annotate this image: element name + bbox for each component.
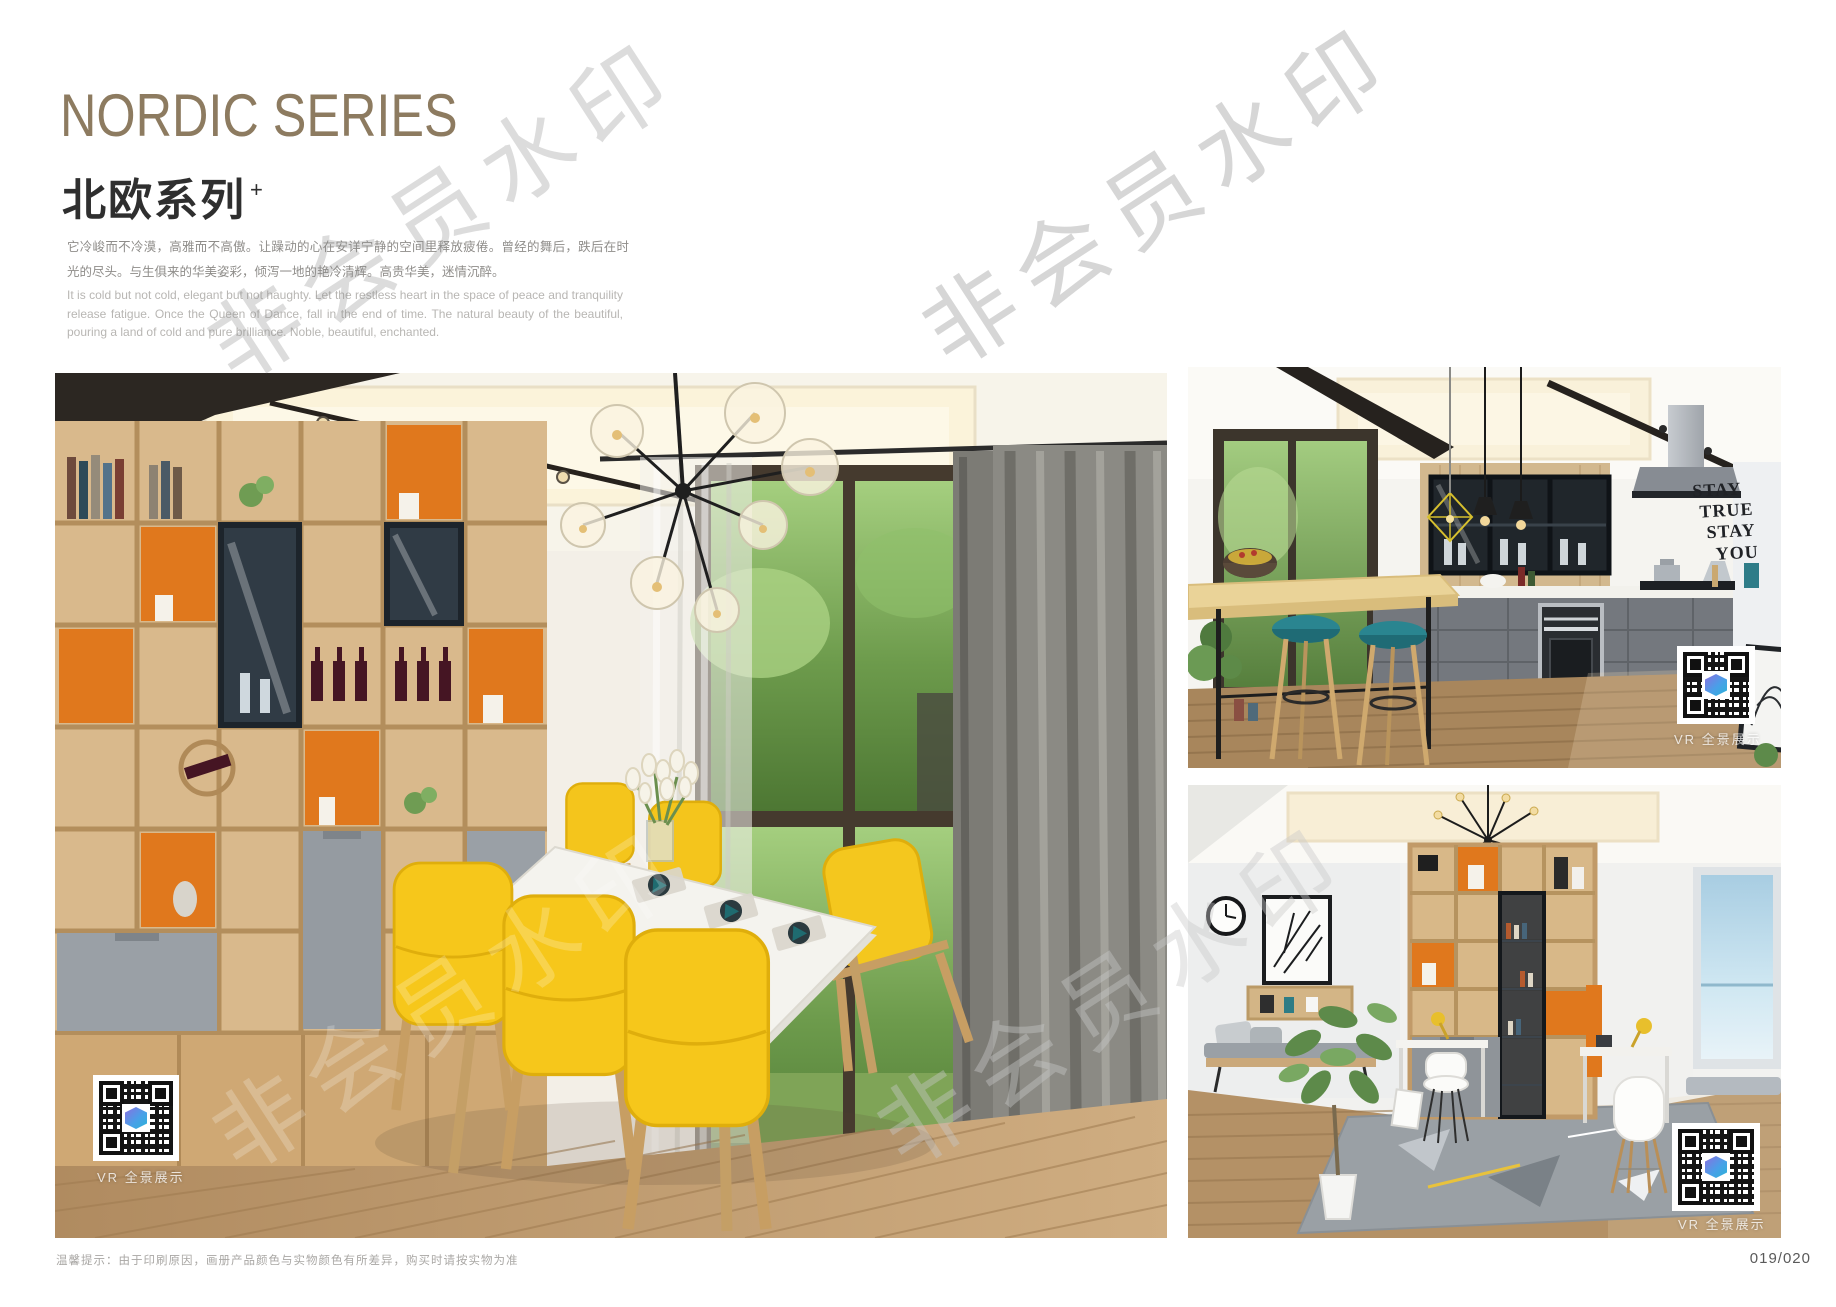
bookshelf-unit bbox=[55, 421, 547, 1166]
stay-true-wall-art: STAY TRUE STAY YOU bbox=[1692, 477, 1768, 566]
page-number: 019/020 bbox=[1750, 1250, 1811, 1267]
gray-drapes bbox=[953, 445, 1167, 1217]
wall-clock bbox=[1208, 898, 1244, 934]
vr-qr-code bbox=[93, 1075, 179, 1161]
qr-eye bbox=[1678, 1180, 1703, 1205]
dining-room-photo: VR 全景展示 bbox=[55, 373, 1167, 1238]
qr-eye bbox=[1729, 1129, 1754, 1154]
catalog-page: NORDIC SERIES 北欧系列+ 它冷峻而不冷漠，高雅而不高傲。让躁动的心… bbox=[0, 0, 1836, 1307]
series-title-superscript: + bbox=[250, 177, 265, 202]
qr-eye bbox=[1678, 1129, 1703, 1154]
intro-paragraph-en: It is cold but not cold, elegant but not… bbox=[67, 286, 623, 342]
series-title-en: NORDIC SERIES bbox=[60, 86, 458, 146]
qr-logo-cube-icon bbox=[1702, 1153, 1730, 1181]
series-title-cn: 北欧系列+ bbox=[62, 164, 265, 228]
qr-eye bbox=[148, 1081, 173, 1106]
vr-qr-code bbox=[1672, 1123, 1760, 1211]
series-title-cn-text: 北欧系列 bbox=[62, 176, 246, 225]
study-window bbox=[1686, 867, 1781, 1095]
qr-eye bbox=[99, 1130, 124, 1155]
study-room-photo: VR 全景展示 bbox=[1188, 785, 1781, 1238]
print-disclaimer-note: 温馨提示：由于印刷原因，画册产品颜色与实物颜色有所差异，购买时请按实物为准 bbox=[56, 1252, 519, 1268]
vr-panorama-label: VR 全景展示 bbox=[97, 1167, 185, 1186]
qr-eye bbox=[99, 1081, 124, 1106]
qr-logo-cube-icon bbox=[1702, 671, 1730, 699]
qr-logo-cube-icon bbox=[122, 1104, 150, 1132]
wall-art-line: YOU bbox=[1715, 541, 1768, 565]
watermark-text: 非会员水印 bbox=[892, 0, 1417, 393]
intro-paragraph-cn: 它冷峻而不冷漠，高雅而不高傲。让躁动的心在安详宁静的空间里释放疲倦。曾经的舞后，… bbox=[67, 235, 629, 285]
kitchen-photo: STAY TRUE STAY YOU VR 全景展示 bbox=[1188, 367, 1781, 768]
dining-room-illustration bbox=[55, 373, 1167, 1238]
vr-qr-code bbox=[1677, 646, 1755, 724]
vr-panorama-label: VR 全景展示 bbox=[1674, 729, 1762, 748]
abstract-art-frame bbox=[1264, 897, 1330, 983]
vr-panorama-label: VR 全景展示 bbox=[1678, 1214, 1766, 1233]
